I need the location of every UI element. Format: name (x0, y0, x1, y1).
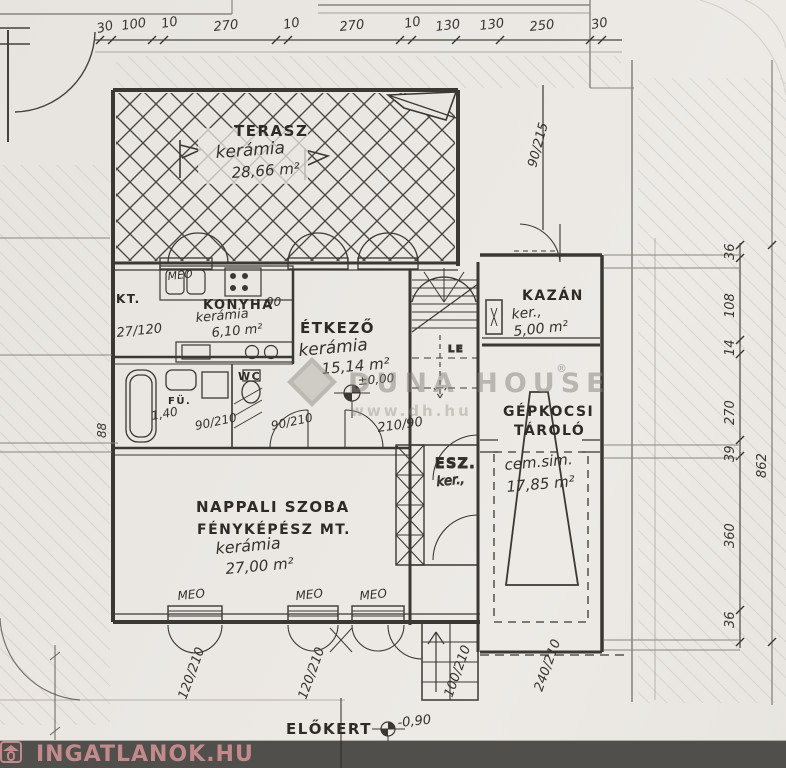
esz-label: ESZ. (435, 456, 476, 472)
window1-tag: MEO (177, 586, 206, 603)
room-kazan: KAZÁN ker., 5,00 m² (486, 224, 584, 340)
right-door-dim: 90/215 (525, 121, 551, 169)
dim-top-2: 10 (160, 14, 179, 32)
dim-top-9: 250 (529, 17, 555, 35)
kazan-label: KAZÁN (522, 287, 584, 304)
exterior-stair (388, 622, 630, 700)
dim-top-0: 30 (95, 18, 115, 37)
window3-tag: MEO (359, 586, 388, 603)
kitchen-window-dim: 27/120 (116, 321, 163, 341)
nappali-area: 27,00 m² (225, 554, 295, 578)
dim-top-7: 130 (435, 17, 461, 35)
dim-top-5: 270 (339, 17, 365, 35)
dim-right-5: 862 (755, 453, 770, 478)
terasz-label: TERASZ (234, 122, 308, 140)
window2-tag: MEO (295, 586, 324, 603)
dim-top-10: 30 (590, 15, 609, 33)
kitchen-window-tag: MEO (167, 267, 194, 283)
garage-door-dim: 240/210 (532, 637, 565, 693)
dim-top-4: 10 (282, 15, 301, 33)
esz-material: ker., (436, 472, 465, 490)
kazan-material: ker., (511, 304, 543, 323)
room-garazs: GÉPKOCSI TÁROLÓ cem.sim. 17,85 m² (480, 392, 600, 622)
garazs-label-1: GÉPKOCSI (503, 403, 594, 420)
watermark-reg: ® (556, 362, 567, 375)
konyha-area: 6,10 m² (211, 322, 263, 341)
portal-watermark-bar: INGATLANOK.HU (0, 741, 786, 768)
elokert: ELŐKERT -0,90 (286, 713, 432, 741)
dim-right-0: 36 (723, 243, 738, 260)
ingatlanok-logo: INGATLANOK.HU (36, 744, 254, 766)
top-dimension-chain: 30 100 10 270 10 270 10 130 130 250 30 (95, 14, 622, 52)
scan-crease (340, 698, 342, 768)
dim-top-8: 130 (479, 16, 505, 34)
garazs-label-2: TÁROLÓ (514, 421, 585, 439)
etkezo-label: ÉTKEZŐ (300, 317, 375, 337)
dim-right-7: 36 (723, 611, 738, 628)
dim-right-2: 14 (723, 339, 738, 356)
window1-dim: 120/210 (176, 645, 209, 701)
window2-dim: 120/210 (296, 645, 329, 701)
wall-mark: 88 (95, 422, 109, 438)
house-icon (0, 741, 22, 763)
dim-right-6: 360 (723, 523, 738, 548)
dim-top-6: 10 (403, 14, 422, 32)
elokert-level: -0,90 (397, 713, 432, 731)
garazs-material: cem.sim. (504, 450, 574, 474)
dim-right-3: 270 (723, 400, 738, 425)
elokert-label: ELŐKERT (286, 718, 372, 738)
room-terasz: TERASZ kerámia 28,66 m² (116, 92, 456, 261)
bath-dim-a: 1,40 (150, 404, 179, 422)
dim-top-1: 100 (120, 16, 147, 34)
bottom-window-texts: MEO MEO MEO 120/210 120/210 100/210 240/… (176, 586, 565, 701)
wc-label: WC (238, 370, 261, 383)
room-nappali: NAPPALI SZOBA FÉNYKÉPÉSZ MT. kerámia 27,… (196, 498, 351, 578)
konyha-door-dim: 90 (266, 295, 282, 309)
bottom-windows (168, 606, 404, 653)
watermark-url: www.dh.hu (350, 402, 472, 420)
room-konyha: KT. KONYHA 90 kerámia 6,10 m² 27/120 MEO (116, 267, 282, 341)
dim-top-3: 270 (213, 17, 239, 35)
dim-right-4: 39 (723, 445, 738, 462)
nappali-label-1: NAPPALI SZOBA (196, 498, 350, 516)
scanned-floorplan-page: 30 100 10 270 10 270 10 130 130 250 30 T… (0, 0, 786, 768)
portal-brand-text: INGATLANOK.HU (36, 744, 254, 766)
garazs-area: 17,85 m² (506, 472, 576, 496)
watermark-brand: DUNA HOUSE (348, 368, 611, 399)
floorplan-drawing: 30 100 10 270 10 270 10 130 130 250 30 T… (0, 0, 786, 768)
window3-dim: 100/210 (442, 643, 475, 699)
stair-direction-label: LE (448, 344, 464, 355)
dim-right-1: 108 (723, 293, 738, 318)
konyha-abbr: KT. (116, 292, 141, 306)
room-esz: ESZ. ker., (396, 445, 478, 565)
